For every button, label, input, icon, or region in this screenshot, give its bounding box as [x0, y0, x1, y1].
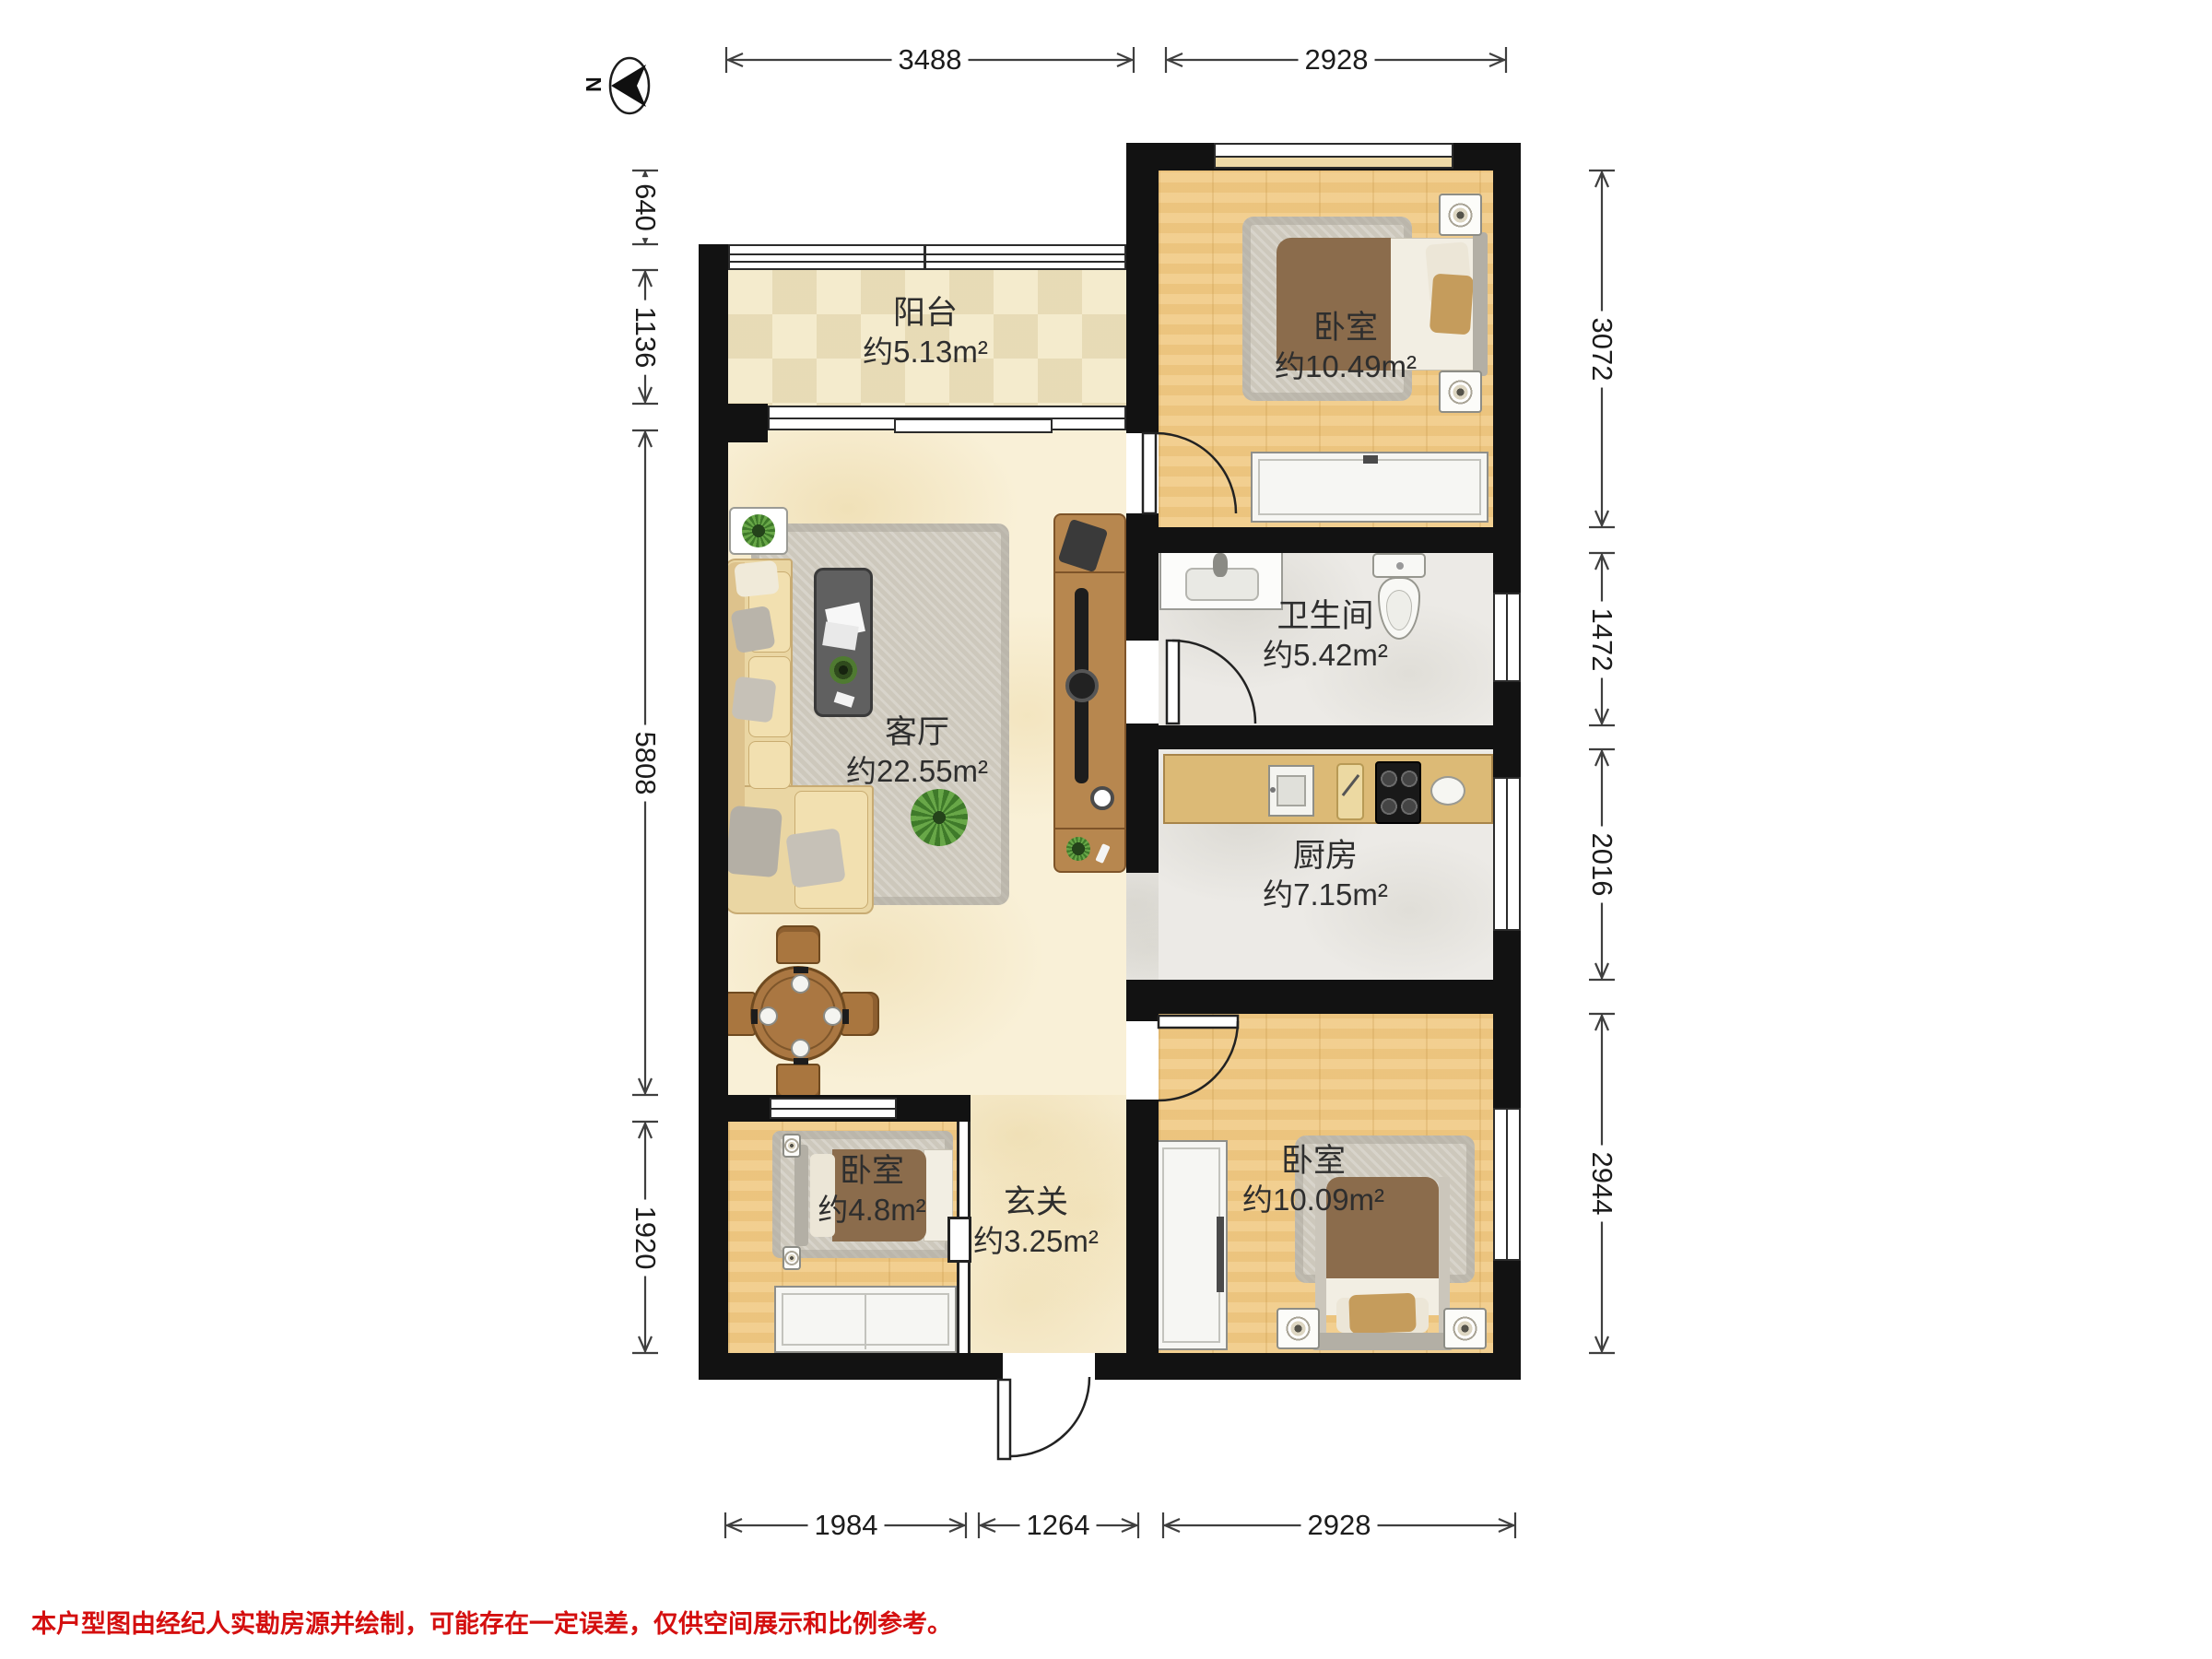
dim-top-1: 3488 — [892, 43, 969, 76]
kitchen-label: 厨房 约7.15m² — [1263, 837, 1388, 914]
room-name: 阳台 — [863, 294, 988, 333]
compass-north-label: N — [582, 76, 606, 92]
bathroom-label: 卫生间 约5.42m² — [1263, 597, 1388, 675]
dim-right-3: 2016 — [1585, 827, 1618, 903]
door-arc-bathroom — [1172, 641, 1255, 724]
room-name: 卧室 — [818, 1152, 925, 1191]
room-name: 玄关 — [973, 1183, 1099, 1222]
disclaimer-text: 本户型图由经纪人实勘房源并绘制，可能存在一定误差，仅供空间展示和比例参考。 — [31, 1604, 952, 1640]
room-area: 约22.55m² — [846, 752, 988, 791]
room-area: 约7.15m² — [1263, 876, 1388, 914]
room-area: 约3.25m² — [973, 1222, 1099, 1261]
balcony-label: 阳台 约5.13m² — [863, 294, 988, 371]
living-label: 客厅 约22.55m² — [846, 713, 988, 791]
room-name: 客厅 — [846, 713, 988, 752]
bedroom-top-label: 卧室 约10.49m² — [1275, 309, 1417, 386]
door-leaf-bedroom-bottom — [1159, 1016, 1238, 1028]
door-leaf-bedroom-top — [1143, 433, 1156, 513]
bedroom-small-label: 卧室 约4.8m² — [818, 1152, 925, 1230]
dim-left-1: 640 — [629, 177, 662, 238]
door-leaf-entrance — [998, 1380, 1010, 1459]
plan-overlay — [0, 0, 2212, 1659]
dim-bottom-3: 2928 — [1301, 1509, 1378, 1542]
hallway-label: 玄关 约3.25m² — [973, 1183, 1099, 1261]
floorplan-canvas: 阳台 约5.13m² 卧室 约10.49m² 卫生间 约5.42m² 客厅 约2… — [0, 0, 2212, 1659]
dim-right-1: 3072 — [1585, 312, 1618, 388]
door-arc-bedroom-bottom — [1159, 1021, 1238, 1100]
dim-bottom-1: 1984 — [808, 1509, 885, 1542]
door-arc-entrance — [1010, 1377, 1089, 1456]
dim-left-2: 1136 — [629, 300, 662, 375]
room-area: 约5.42m² — [1263, 636, 1388, 675]
door-arc-bedroom-top — [1156, 433, 1236, 513]
door-leaf-bathroom — [1167, 641, 1179, 724]
room-area: 约5.13m² — [863, 333, 988, 371]
dim-left-3: 5808 — [629, 725, 662, 802]
dim-top-2: 2928 — [1299, 43, 1375, 76]
room-area: 约4.8m² — [818, 1191, 925, 1230]
room-area: 约10.09m² — [1242, 1181, 1384, 1219]
dim-bottom-2: 1264 — [1020, 1509, 1097, 1542]
room-name: 厨房 — [1263, 837, 1388, 876]
room-name: 卫生间 — [1263, 597, 1388, 636]
room-name: 卧室 — [1275, 309, 1417, 347]
dim-right-4: 2944 — [1585, 1146, 1618, 1222]
bedroom-bottom-label: 卧室 约10.09m² — [1242, 1142, 1384, 1219]
dim-left-4: 1920 — [629, 1200, 662, 1277]
dim-right-2: 1472 — [1585, 602, 1618, 678]
room-name: 卧室 — [1242, 1142, 1384, 1181]
room-area: 约10.49m² — [1275, 347, 1417, 386]
